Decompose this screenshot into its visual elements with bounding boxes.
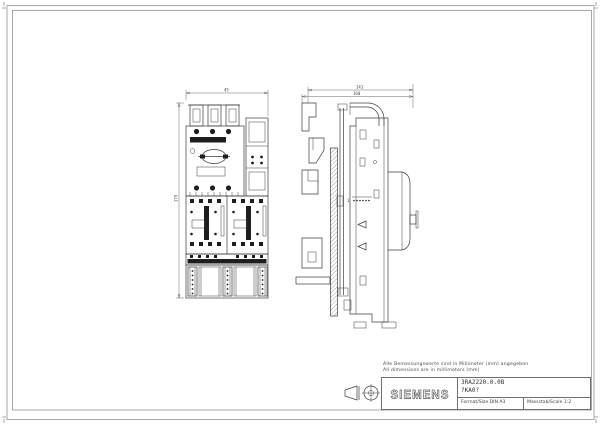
siemens-logo-text: SIEMENS: [390, 389, 449, 401]
busbar-adapter-front: [186, 265, 268, 298]
nameplate-window: [197, 167, 225, 176]
test-button-icon: [190, 149, 195, 154]
note-line-en: All dimensions are in millimeters (mm): [383, 368, 598, 374]
front-width-value: 45: [224, 88, 229, 93]
corner-mark-icon: [594, 417, 598, 423]
auxiliary-module: [246, 118, 268, 196]
busbar-adapter-profile: [296, 103, 330, 284]
wiring-duct-arc: [350, 103, 384, 126]
product-number: 3RA2220.0.0B: [461, 379, 587, 387]
mounting-rail-section: [331, 148, 338, 316]
front-height-value: 170: [174, 194, 179, 202]
dimension-notes: Alle Bemessungswerte sind in Millimeter …: [383, 362, 598, 373]
front-width-dimension: 45: [186, 88, 268, 117]
format-cell: Format/Size DIN A3: [458, 398, 524, 409]
screw-detail: 1: [347, 197, 372, 203]
brand-cell: SIEMENS: [382, 378, 458, 409]
side-upper-dim-value: 141: [356, 85, 364, 90]
terminal-clamps: [188, 105, 240, 126]
scale-cell: Massstab/Scale 1:2: [524, 398, 590, 409]
front-height-dimension: 170: [174, 103, 185, 298]
title-block: SIEMENS 3RA2220.0.0B ?KA0? Format/Size D…: [381, 377, 591, 410]
product-cell: 3RA2220.0.0B ?KA0?: [458, 378, 590, 398]
device-profile: 1: [344, 118, 418, 328]
corner-mark-icon: [594, 2, 598, 8]
format-scale-row: Format/Size DIN A3 Massstab/Scale 1:2: [458, 398, 590, 409]
order-code: ?KA0?: [461, 387, 587, 395]
contactor-front: [186, 196, 268, 254]
rotary-handle-icon: [198, 150, 230, 164]
screw-detail-label: 1: [347, 198, 350, 203]
front-view: 45 170: [174, 88, 269, 299]
side-total-dim-value: 160: [353, 91, 361, 96]
first-angle-projection-icon: [342, 383, 382, 405]
clip-arrow-icon: [358, 221, 366, 228]
clip-arrow-icon: [358, 243, 366, 250]
side-view: 141 160: [296, 84, 418, 328]
knob-shaft: [410, 215, 416, 224]
corner-mark-icon: [2, 2, 6, 8]
circuit-breaker-front: [186, 126, 244, 196]
corner-mark-icon: [2, 417, 6, 423]
engineering-drawing-sheet: 45 170: [0, 0, 600, 425]
siemens-logo: SIEMENS: [385, 382, 455, 406]
terminal-strip: [186, 254, 268, 265]
side-depth-dimensions: 141 160: [302, 84, 413, 108]
title-block-fields: 3RA2220.0.0B ?KA0? Format/Size DIN A3 Ma…: [458, 378, 590, 409]
sheet-border: [2, 2, 598, 423]
